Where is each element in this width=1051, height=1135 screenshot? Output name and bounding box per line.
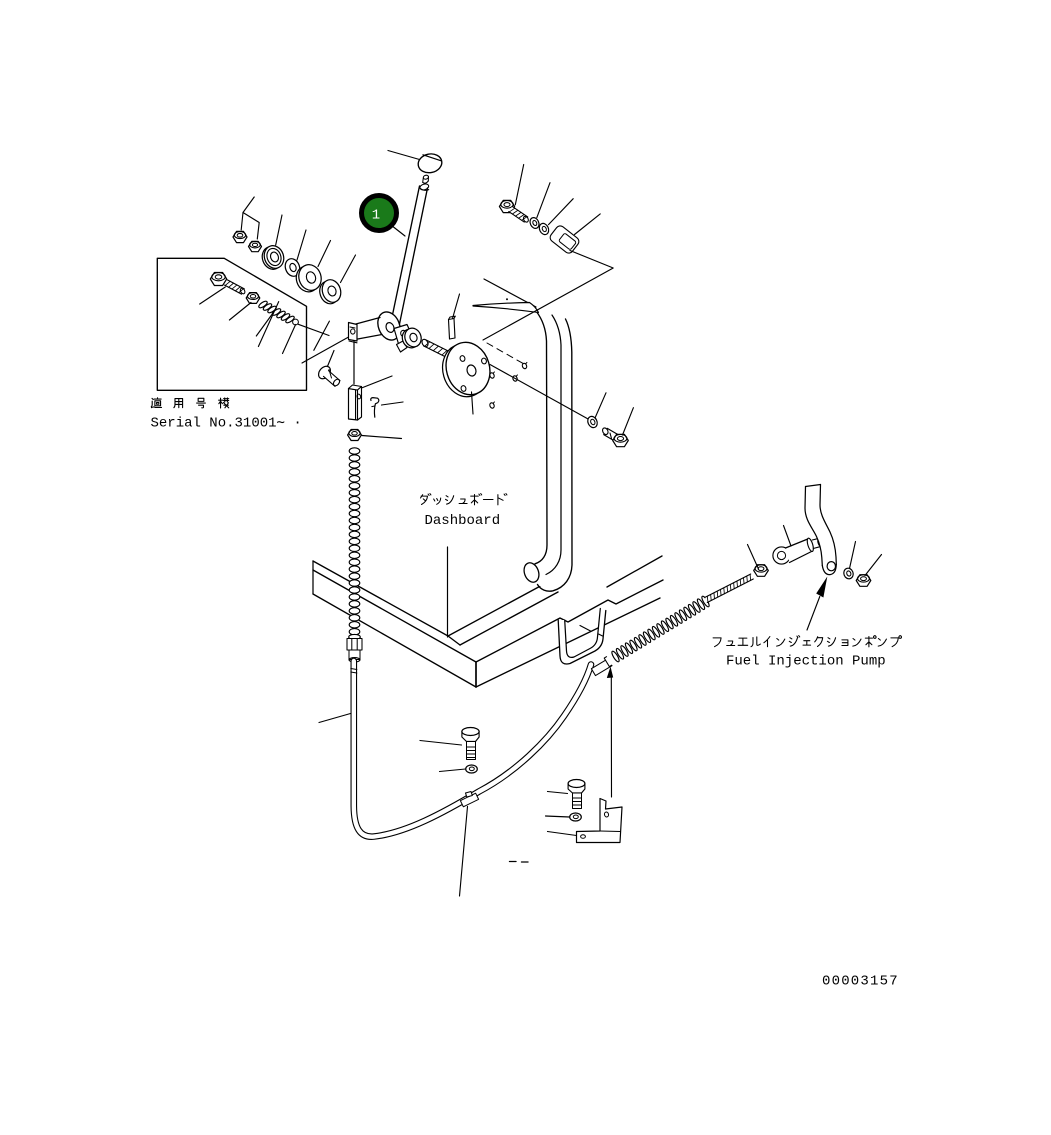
svg-text:Fuel Injection Pump: Fuel Injection Pump [726,654,886,670]
svg-text:00003157: 00003157 [822,974,899,990]
svg-text:1: 1 [372,208,380,224]
svg-text:Serial No.31001∼ ·: Serial No.31001∼ · [151,416,302,432]
svg-text:Dashboard: Dashboard [425,513,501,529]
